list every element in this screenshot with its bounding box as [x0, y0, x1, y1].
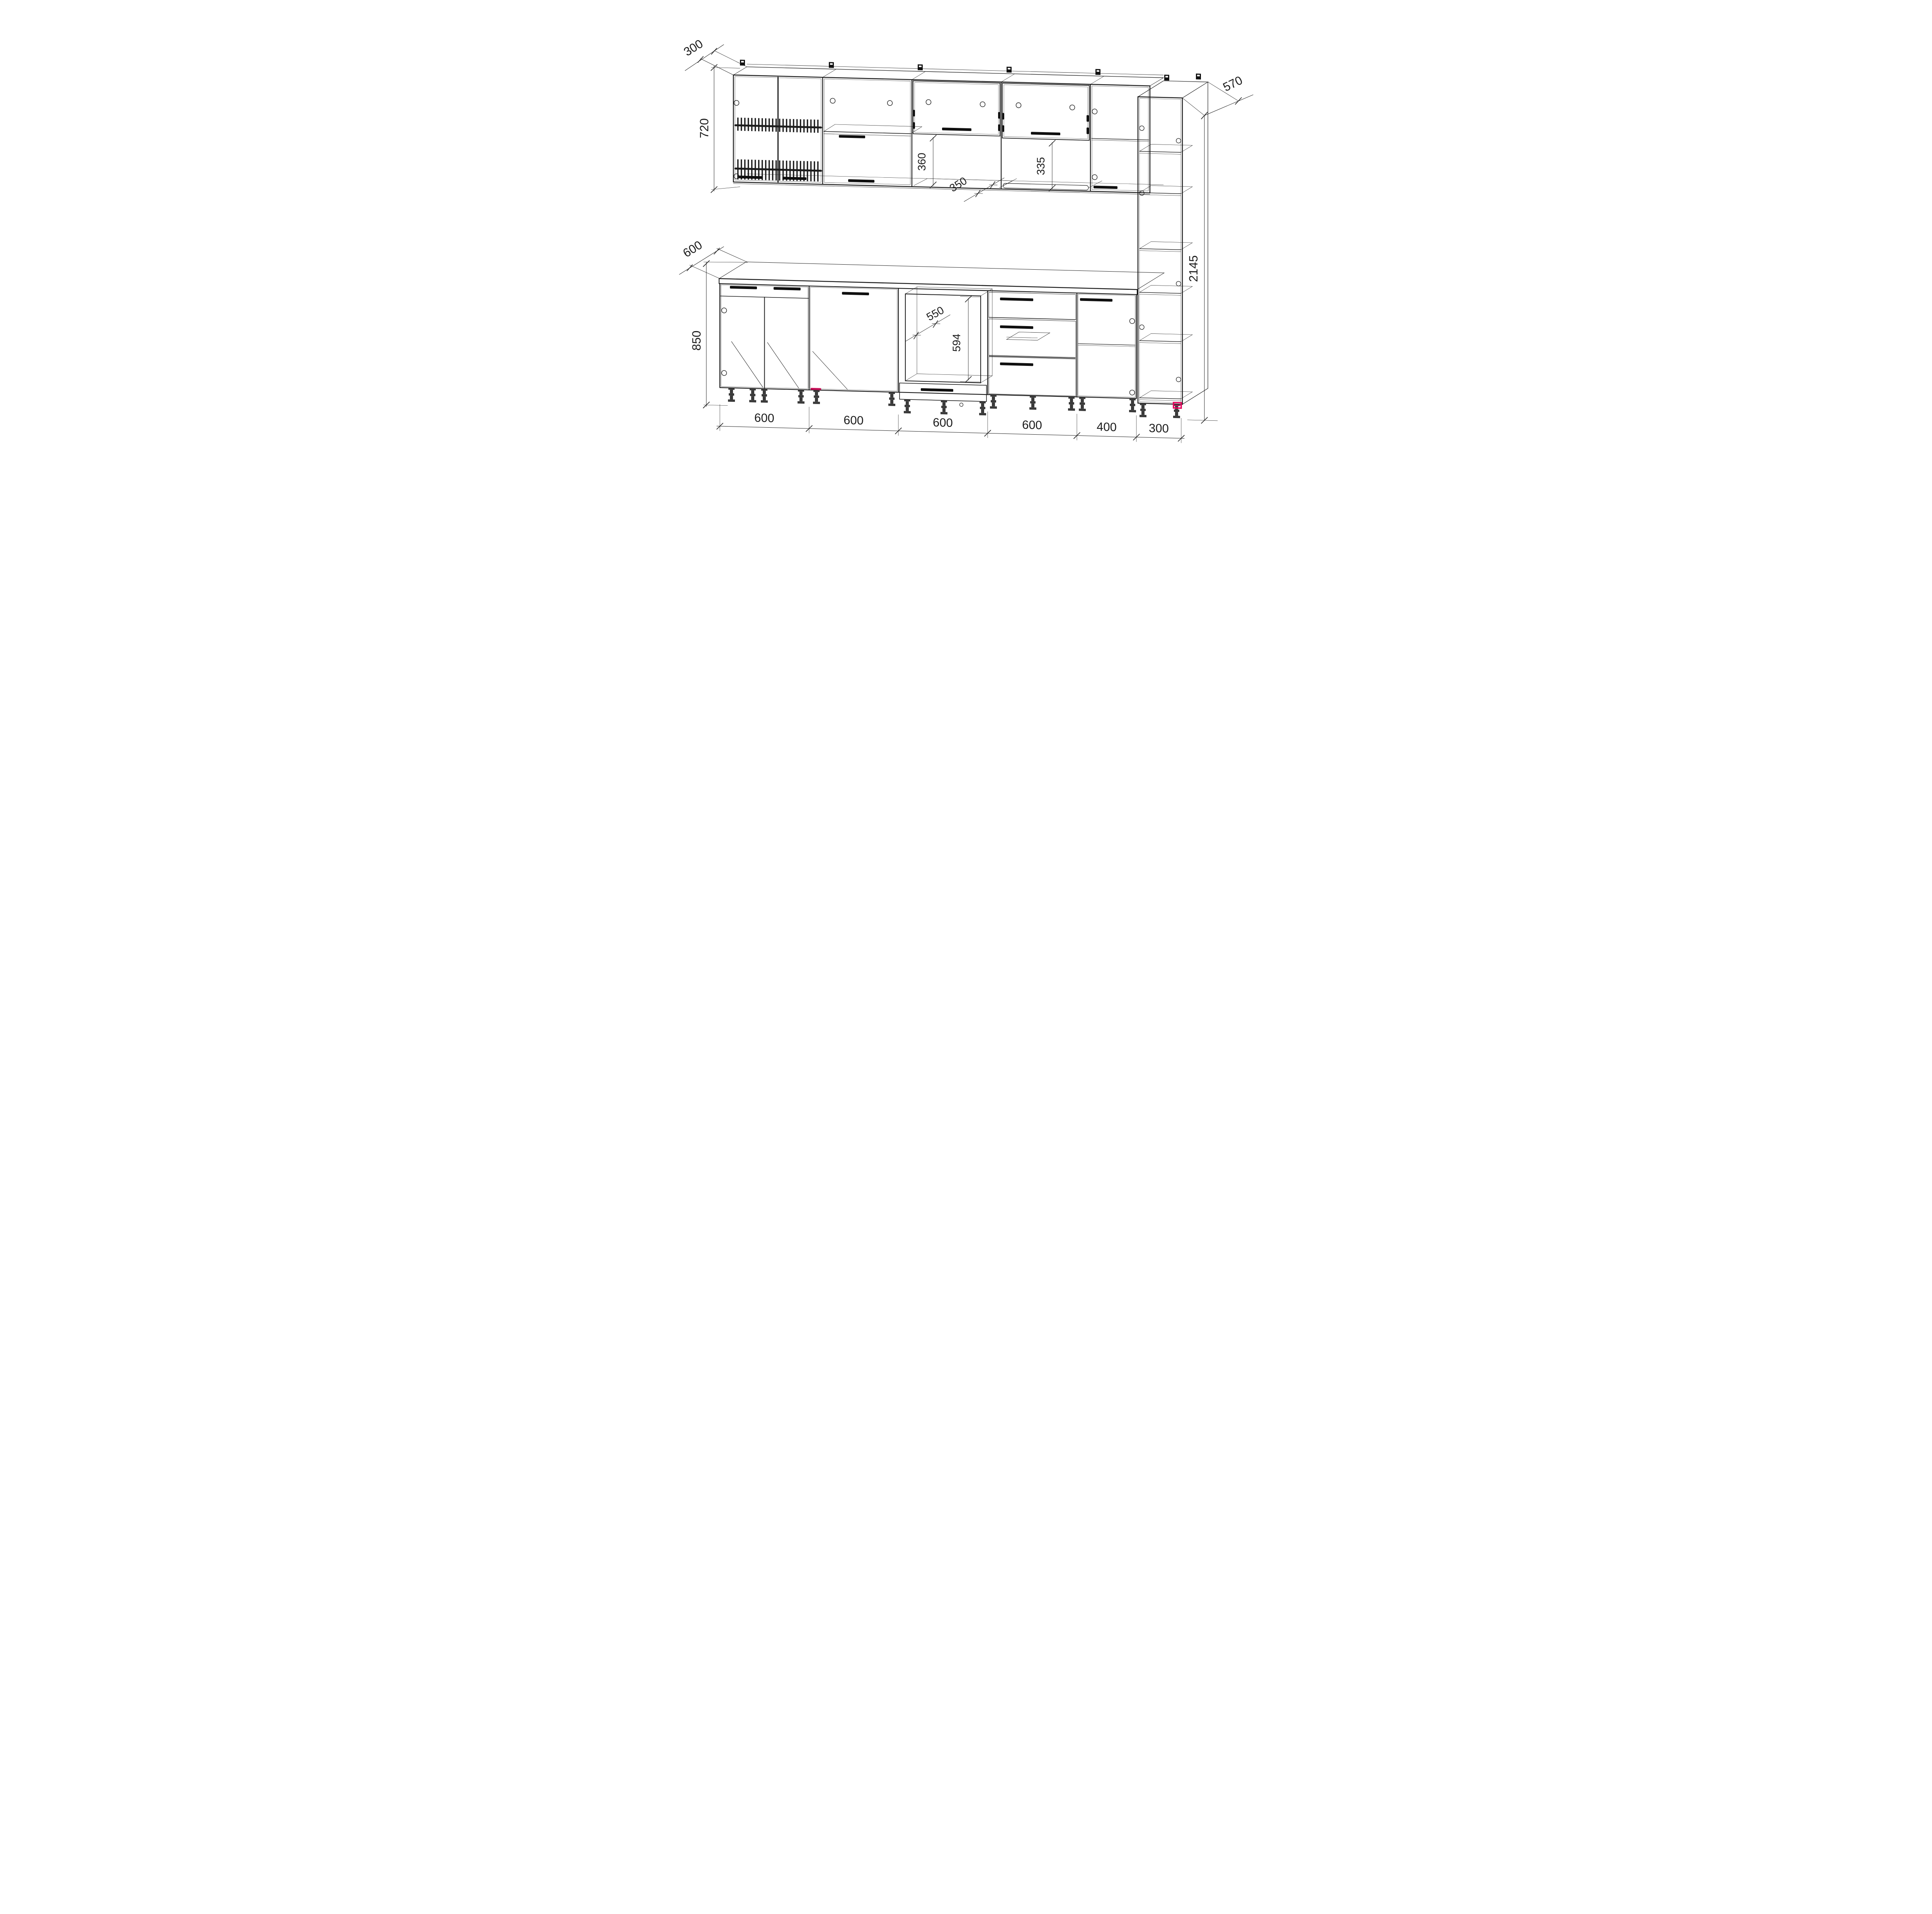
hinge-icon [1092, 109, 1097, 114]
hinge-icon [722, 371, 727, 376]
hinge-strip-icon [913, 110, 915, 116]
hinge-icon [926, 100, 931, 105]
hinge-icon [830, 98, 835, 103]
hinge-strip-icon [998, 124, 1000, 131]
hinge-icon [1016, 103, 1021, 108]
shelf-pin-icon [1176, 138, 1181, 143]
shelf-pin-icon [1176, 377, 1181, 382]
dim-upper-height-label: 720 [697, 118, 711, 139]
base-cabinet-1 [721, 285, 820, 390]
hinge-icon [1130, 390, 1135, 395]
hinge-icon [980, 102, 985, 107]
dim-oven-niche-depth-label: 550 [924, 304, 946, 323]
dim-oven-niche-height: 594 [951, 296, 981, 383]
door-handle [848, 179, 874, 183]
base-cabinet-2 [810, 287, 897, 391]
dim-module-widths: 600 600 600 600 400 300 [717, 405, 1184, 443]
dim-width-5-label: 400 [1097, 420, 1117, 434]
hinge-strip-icon [1087, 127, 1089, 134]
hinge-icon [1070, 105, 1075, 110]
hinge-icon [1092, 175, 1097, 180]
shelf-pin-icon [1176, 281, 1181, 286]
base-cabinet-3-oven-niche [900, 286, 992, 407]
dim-width-4-label: 600 [1022, 418, 1042, 432]
door-handle [1031, 132, 1060, 135]
dim-oven-niche-depth: 550 [905, 303, 950, 342]
dim-width-1-label: 600 [754, 411, 774, 425]
dim-u4-niche-depth-label: 350 [947, 175, 969, 194]
dim-tall-depth-label: 570 [1221, 73, 1245, 94]
dim-u3-niche-height-label: 360 [916, 153, 928, 171]
dim-u3-niche-height: 360 [916, 134, 936, 188]
wall-cabinet-4 [1002, 83, 1102, 190]
drawer-handle [921, 388, 953, 392]
hinge-icon [960, 403, 963, 406]
drawer-handle [1000, 362, 1033, 366]
dim-width-6-label: 300 [1149, 421, 1169, 435]
hinge-strip-icon [913, 122, 915, 129]
shelf-pin-icon [1139, 325, 1144, 330]
hinge-icon [734, 100, 739, 105]
shelf-pin-icon [1139, 126, 1144, 131]
door-handle [942, 127, 971, 131]
door-handle [842, 292, 869, 295]
door-handle [774, 287, 801, 291]
drawer-handle [1000, 297, 1033, 301]
drawer-handle [1000, 325, 1033, 329]
wall-cabinet-3 [913, 81, 1013, 188]
dim-oven-niche-height-label: 594 [951, 333, 963, 352]
dim-base-depth: 600 [679, 238, 747, 279]
hinge-strip-icon [1002, 125, 1004, 132]
hinge-icon [1130, 318, 1135, 323]
door-handle [1080, 298, 1112, 302]
wall-cabinet-1-dish-rack [734, 76, 821, 183]
kitchen-elevation-drawing: 300 720 600 850 [673, 0, 1259, 479]
dim-u4-niche-height-label: 335 [1035, 157, 1047, 175]
wall-cabinet-5 [1092, 86, 1149, 191]
wall-cabinet-row [733, 59, 1163, 195]
dim-u4-niche-height: 335 [1035, 139, 1055, 191]
plate-rack-upper [735, 117, 821, 133]
dim-tall-depth: 570 [1182, 72, 1253, 120]
dim-base-depth-label: 600 [680, 238, 704, 260]
hinge-strip-icon [1002, 113, 1004, 119]
base-cabinet-row [720, 282, 1136, 419]
dim-upper-depth-label: 300 [681, 37, 705, 59]
hinge-strip-icon [998, 112, 1000, 119]
base-cabinet-4-drawers [989, 292, 1076, 396]
door-handle [1094, 185, 1117, 189]
wall-cabinet-2 [824, 79, 922, 185]
hinge-icon [722, 308, 727, 313]
dim-width-3-label: 600 [933, 416, 953, 430]
hinge-strip-icon [1087, 115, 1089, 122]
door-handle [839, 135, 865, 138]
drawing-canvas: 300 720 600 850 [673, 0, 1259, 479]
wall-mount-brackets [740, 60, 1100, 75]
dim-tall-height: 2145 [1187, 115, 1218, 424]
countertop [719, 261, 1164, 295]
dim-width-2-label: 600 [844, 413, 864, 427]
dim-base-height-label: 850 [690, 330, 703, 351]
door-handle [730, 286, 757, 289]
dim-tall-height-label: 2145 [1187, 255, 1200, 282]
hinge-icon [888, 100, 893, 105]
adjustable-feet [728, 388, 1136, 420]
base-cabinet-5 [1078, 294, 1135, 397]
